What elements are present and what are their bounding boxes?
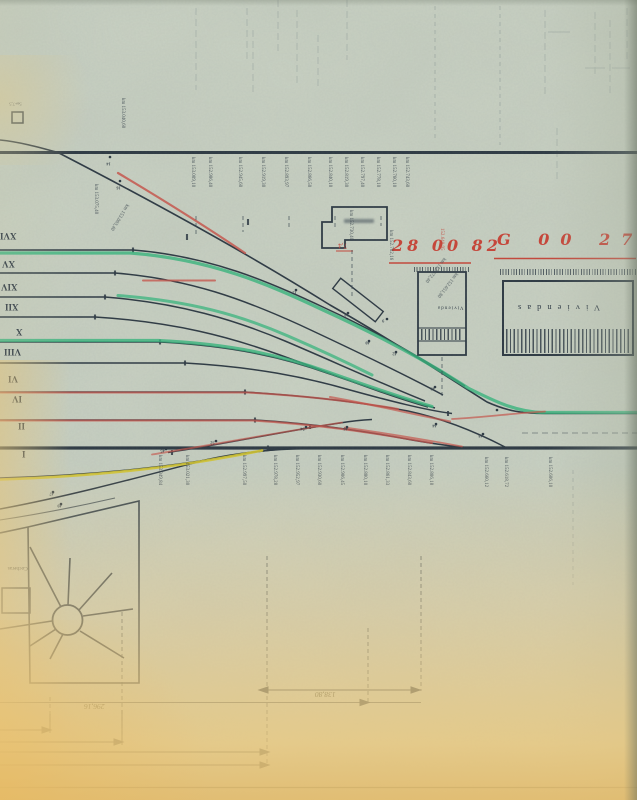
milepost-labels-layer: km 153.009,10km 152.986,40km 152.945,60k… — [0, 0, 637, 800]
arrowhead — [259, 687, 268, 693]
siding-x — [0, 342, 435, 408]
km-label: km 152.880,10 — [363, 455, 368, 485]
switch-number: 52 — [210, 441, 214, 446]
vivienda-dimension-ticks — [414, 267, 469, 272]
km-label: km 152.919,30 — [261, 157, 266, 187]
km-label: km 152.945,60 — [238, 157, 243, 187]
switch-number: 44 — [432, 424, 436, 429]
km-label: km 152.906,45 — [340, 455, 345, 485]
depot-fence — [0, 501, 139, 683]
km-label: km 152.660,12 — [484, 457, 489, 487]
km-label: km 152.997,50 — [242, 455, 247, 485]
km-label: km 152.743,60 — [405, 157, 410, 187]
km-label: km 153.009,10 — [191, 157, 196, 187]
extension-lines — [50, 216, 442, 766]
km-label: km 152.606,10 — [548, 457, 553, 487]
signal-hut-label: 5a+7,5 — [9, 102, 21, 107]
yellow-marker — [0, 451, 262, 480]
red-marker-3 — [0, 393, 398, 410]
km-label: km 153.040,60 — [121, 98, 126, 128]
depot-siding — [0, 450, 278, 479]
cocheras-label: Cocheras — [8, 566, 28, 572]
switch-number: 9 — [382, 319, 384, 324]
turntable-circle — [53, 605, 83, 635]
switch-number: 12 — [292, 291, 296, 296]
page-edge-shadow-top — [0, 0, 637, 6]
l-shaped-building — [322, 207, 387, 248]
switch-number: 47 — [49, 492, 53, 497]
paper-blotch-texture — [0, 0, 637, 800]
km-label: km 152.893,97 — [284, 157, 289, 187]
turntable-spokes — [0, 547, 133, 659]
depot-lead — [0, 449, 310, 510]
page-edge-shadow-right — [624, 0, 637, 800]
km-label: km 152.797,40 — [360, 157, 365, 187]
scanned-track-plan: 28 00 82 G 00 27 152.640,95 7,4 Vivienda… — [0, 0, 637, 800]
siding-vi — [0, 392, 505, 447]
km-label: km 153.063,40 — [110, 203, 130, 231]
angled-platform — [333, 278, 384, 321]
siding-xii — [0, 317, 428, 407]
siding-xiv — [0, 297, 425, 401]
red-vertical-note: 152.640,95 — [440, 228, 445, 251]
red-marker-1 — [118, 173, 245, 253]
arrowhead — [360, 700, 369, 706]
paper-tint-bottom-left — [0, 620, 220, 800]
km-label: km 152.730,40 — [349, 210, 354, 240]
switch-numbers-layer: 1416121094042434446455254484749 — [0, 0, 637, 800]
viviendas-dimension-ticks — [500, 269, 636, 275]
marker-highlights — [0, 173, 637, 480]
red-marker-4 — [330, 397, 450, 422]
switch-number: 54 — [300, 427, 304, 432]
arrowhead — [260, 749, 269, 755]
km-label: km 152.866,50 — [307, 157, 312, 187]
red-width-note: 7,4 — [338, 242, 347, 250]
paper-grain-texture — [0, 0, 637, 800]
km-label: km 153.049,84 — [158, 455, 163, 485]
switch-number: 46 — [343, 427, 347, 432]
km-label: km 152.840,10 — [328, 157, 333, 187]
switch-number: 42 — [392, 352, 396, 357]
km-label: km 152.618,72 — [504, 457, 509, 487]
siding-ii — [0, 420, 468, 448]
paper-tint-topleft — [0, 55, 110, 165]
track-numeral: XII — [5, 302, 19, 312]
km-label: km 152.930,60 — [317, 455, 322, 485]
switch-number: 14 — [106, 162, 110, 167]
paper-tint-left — [0, 360, 70, 800]
arrowhead — [114, 739, 123, 745]
dimension-296: 296,16 — [84, 702, 105, 711]
illegible-building-label — [344, 219, 374, 223]
switch-number: 16 — [116, 186, 120, 191]
yard-ladder-track — [58, 153, 637, 414]
km-label: km 153.075,40 — [94, 184, 99, 214]
viviendas-hatch — [506, 329, 630, 353]
km-label: km 152.843,60 — [407, 455, 412, 485]
vivienda-label: Vivienda — [437, 305, 464, 311]
pencil-marks — [196, 0, 630, 180]
km-label: km 152.651,80 — [436, 272, 459, 299]
red-marker-7 — [452, 412, 545, 420]
viviendas-label: Viviendas — [512, 303, 600, 313]
red-marker-5 — [0, 421, 432, 444]
track-numeral: XVI — [0, 231, 17, 241]
switch-number: 43 — [430, 387, 434, 392]
switch-number: 45 — [160, 449, 164, 454]
depot-shed — [2, 588, 30, 613]
track-numeral: II — [18, 421, 25, 431]
plan-linework — [0, 0, 637, 800]
switch-number: 49 — [57, 504, 61, 509]
km-label: km 153.021,30 — [185, 455, 190, 485]
crossover — [168, 420, 372, 453]
paper-tint-bottom — [0, 0, 637, 800]
arrowhead — [260, 762, 269, 768]
vivienda-hatch — [421, 329, 463, 340]
track-numeral: VI — [8, 374, 18, 384]
depot-lead-2 — [0, 498, 115, 520]
vivienda-building — [418, 272, 466, 355]
paper-side-tone — [0, 0, 637, 800]
km-label: km 152.861,33 — [385, 455, 390, 485]
km-label: km 152.978,28 — [273, 455, 278, 485]
siding-xvi — [0, 250, 465, 386]
km-label: km 152.760,10 — [392, 157, 397, 187]
depot-area — [0, 501, 139, 683]
siding-xv — [0, 273, 443, 395]
red-marker-6 — [345, 428, 462, 447]
dim-row-4 — [0, 710, 122, 745]
km-label: km 152.986,40 — [208, 157, 213, 187]
siding-viii — [0, 363, 452, 414]
red-handwriting-left: 28 00 82 — [392, 236, 502, 255]
track-numeral: X — [16, 327, 23, 337]
km-label: km 152.952,97 — [295, 455, 300, 485]
track-numeral: XIV — [1, 282, 18, 292]
red-marker-8 — [152, 423, 342, 455]
track-numeral: IV — [12, 394, 22, 404]
switch-number: 48 — [478, 434, 482, 439]
arrowhead — [42, 727, 51, 733]
km-label: km 152.778,10 — [376, 157, 381, 187]
switch-number: 40 — [365, 341, 369, 346]
track-numeral: I — [22, 449, 26, 459]
track-numeral: XV — [2, 259, 15, 269]
track-numeral: VIII — [4, 347, 21, 357]
switch-number: 10 — [344, 313, 348, 318]
green-marker-3 — [118, 296, 372, 376]
km-label: km 152.806,18 — [429, 455, 434, 485]
track-numerals-layer: XVIXVXIVXIIXVIIIVIIVIII — [0, 0, 637, 800]
green-marker-2 — [0, 341, 432, 407]
faint-survey-lines — [435, 6, 573, 585]
dimension-138: 138,80 — [315, 690, 336, 699]
dim-row-3 — [0, 714, 50, 733]
red-handwriting-right: G 00 27 — [497, 230, 637, 249]
approach-curve — [0, 140, 58, 153]
km-label: km 152.819,30 — [344, 157, 349, 187]
signal-hut — [12, 112, 23, 123]
arrowhead — [411, 687, 420, 693]
